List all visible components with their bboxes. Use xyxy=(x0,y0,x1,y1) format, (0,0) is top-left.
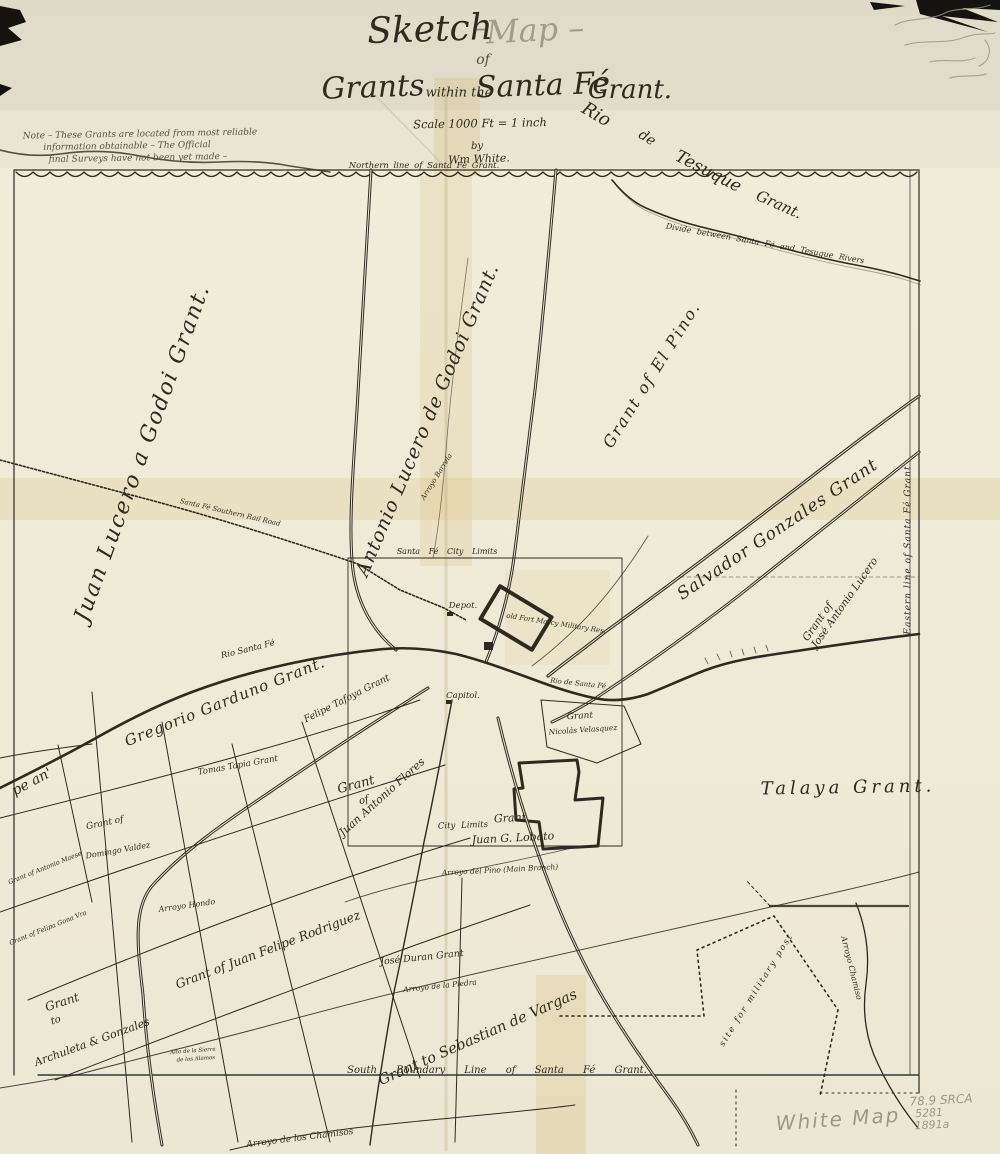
north-scallop-line xyxy=(16,172,917,177)
city-limits-bottom-label: City Limits xyxy=(438,821,488,831)
grant-velasquez-1: Grant xyxy=(567,712,594,723)
rio-santa-fe xyxy=(0,634,919,788)
road-se xyxy=(498,718,698,1145)
road-se-core xyxy=(498,718,698,1145)
corner-mark-top-right-2 xyxy=(870,2,905,10)
corner-mark-top-left xyxy=(0,6,26,46)
map-title-of: of xyxy=(476,53,490,67)
map-title-map: Map – xyxy=(485,11,585,48)
map-title-grantword: Grant. xyxy=(588,77,672,103)
city-limits-top-label: Santa Fé City Limits xyxy=(397,548,498,556)
depot-label: Depot. xyxy=(449,602,478,611)
map-scale: Scale 1000 Ft = 1 inch xyxy=(413,117,547,131)
stream-ne-of-city xyxy=(532,536,648,666)
road-ne-2-core xyxy=(552,452,919,722)
plaza-block xyxy=(484,642,493,650)
east-boundary-label: Eastern line of Santa Fé Grant xyxy=(905,465,914,634)
road-ne-2 xyxy=(552,452,919,722)
road-north-east xyxy=(486,170,556,662)
map-title-dash: – xyxy=(472,14,486,42)
corner-mark-top-right xyxy=(916,0,1000,32)
talaya-dash xyxy=(746,880,770,906)
map-stage: Sketch–Map –ofGrantswithin theSanta FéGr… xyxy=(0,0,1000,1154)
pencil-archive-3: 1891a xyxy=(914,1119,949,1132)
grant-lobato-1: Grant xyxy=(494,812,527,825)
capitol-label: Capitol. xyxy=(446,692,480,701)
map-title-grants: Grants xyxy=(321,71,425,105)
road-north-west xyxy=(351,170,396,650)
city-limits-square xyxy=(348,558,622,846)
grant-talaya: Talaya Grant. xyxy=(760,777,935,798)
road-north-east-core xyxy=(486,170,556,662)
north-boundary-label: Northern line of Santa Fé Grant. xyxy=(349,162,500,171)
depot-marker xyxy=(447,612,453,616)
corner-mark-top-left-2 xyxy=(0,84,12,96)
map-by: by xyxy=(471,142,483,152)
